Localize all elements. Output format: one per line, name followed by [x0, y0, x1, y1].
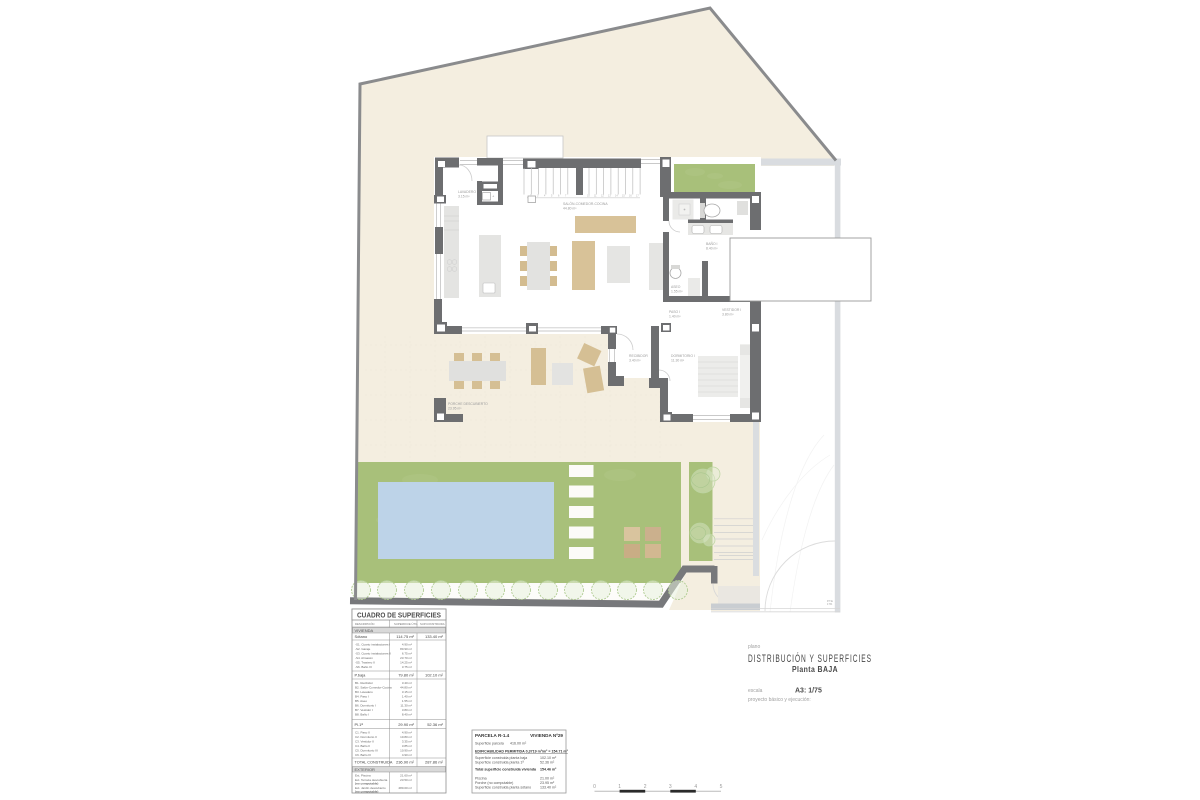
svg-text:133.40 m²: 133.40 m² — [425, 634, 444, 639]
svg-text:-S6. Baño III: -S6. Baño III — [355, 665, 372, 669]
svg-text:C6. Baño III: C6. Baño III — [355, 753, 371, 757]
svg-text:Ext. Piscina: Ext. Piscina — [355, 774, 371, 778]
svg-text:0: 0 — [593, 784, 596, 790]
svg-text:4: 4 — [694, 784, 697, 790]
svg-text:102.10 m²: 102.10 m² — [540, 756, 557, 760]
svg-text:236.90 m²: 236.90 m² — [396, 760, 415, 765]
svg-text:23.50 m²: 23.50 m² — [400, 778, 412, 782]
svg-text:VIVIENDA: VIVIENDA — [355, 628, 374, 633]
svg-text:A3: 1/75: A3: 1/75 — [795, 688, 822, 695]
svg-text:1.40 m²: 1.40 m² — [402, 695, 412, 699]
svg-text:VIVIENDA Nº29: VIVIENDA Nº29 — [530, 733, 563, 738]
svg-text:21.60 m²: 21.60 m² — [400, 774, 412, 778]
svg-text:B7. Vestidor I: B7. Vestidor I — [355, 708, 373, 712]
svg-text:287.86 m²: 287.86 m² — [425, 760, 444, 765]
svg-text:2: 2 — [644, 784, 647, 790]
svg-text:B6. Dormitorio I: B6. Dormitorio I — [355, 704, 376, 708]
svg-text:EDIFICABILIDAD PERMITIDA 0,37: EDIFICABILIDAD PERMITIDA 0,3719 m²/m² = … — [475, 750, 569, 754]
svg-text:(no computable): (no computable) — [355, 790, 378, 794]
svg-text:-S3. Cuarto instalaciones II: -S3. Cuarto instalaciones II — [355, 652, 391, 656]
svg-text:SUPERFICIE ÚTIL: SUPERFICIE ÚTIL — [394, 621, 418, 626]
svg-text:6.75 m²: 6.75 m² — [402, 652, 412, 656]
svg-text:SALÓN-COMEDOR-COCINA: SALÓN-COMEDOR-COCINA — [563, 201, 608, 206]
svg-text:5: 5 — [720, 784, 723, 790]
svg-text:B5. Aseo: B5. Aseo — [355, 699, 367, 703]
svg-text:(no computable): (no computable) — [355, 782, 378, 786]
svg-text:Superficie parcela: Superficie parcela — [475, 742, 504, 746]
svg-text:10.90 m²: 10.90 m² — [400, 749, 412, 753]
svg-text:21.00 m²: 21.00 m² — [540, 777, 555, 781]
svg-text:Superficie construida planta b: Superficie construida planta baja — [475, 756, 527, 760]
svg-text:LAVADERO: LAVADERO — [458, 190, 476, 194]
svg-text:DORMITORIO I: DORMITORIO I — [671, 354, 695, 358]
svg-text:C2. Dormitorio II: C2. Dormitorio II — [355, 735, 377, 739]
svg-text:-S4. Almacén: -S4. Almacén — [355, 656, 373, 660]
svg-text:PASO I: PASO I — [669, 310, 680, 314]
svg-text:102.10 m²: 102.10 m² — [425, 673, 444, 678]
svg-text:-S2. Garaje: -S2. Garaje — [355, 647, 371, 651]
svg-text:133.40 m²: 133.40 m² — [540, 786, 557, 790]
svg-text:52.36 m²: 52.36 m² — [427, 722, 443, 727]
svg-text:C1. Paso II: C1. Paso II — [355, 731, 370, 735]
svg-text:3.80 m²: 3.80 m² — [722, 313, 734, 317]
svg-text:3.80 m²: 3.80 m² — [402, 708, 412, 712]
svg-text:3.85 m²: 3.85 m² — [402, 744, 412, 748]
svg-text:VESTIDOR I: VESTIDOR I — [722, 308, 741, 312]
svg-text:RECIBIDOR: RECIBIDOR — [629, 354, 648, 358]
svg-text:1.55 m²: 1.55 m² — [671, 290, 683, 294]
svg-text:Piscina: Piscina — [475, 777, 487, 781]
svg-text:C4. Baño II: C4. Baño II — [355, 744, 370, 748]
svg-text:4.90 m²: 4.90 m² — [402, 731, 412, 735]
svg-text:PORCHE DESCUBIERTO: PORCHE DESCUBIERTO — [448, 402, 488, 406]
svg-text:8.40 m²: 8.40 m² — [402, 713, 412, 717]
svg-text:11.30 m²: 11.30 m² — [671, 359, 685, 363]
svg-text:Total superficie construida vi: Total superficie construida vivienda — [475, 768, 537, 772]
svg-text:3.40 m²: 3.40 m² — [629, 359, 641, 363]
svg-text:ASEO: ASEO — [671, 285, 681, 289]
svg-text:DESCRIPCIÓN: DESCRIPCIÓN — [355, 621, 374, 626]
svg-text:8.40 m²: 8.40 m² — [706, 247, 718, 251]
svg-text:plano: plano — [748, 644, 760, 650]
svg-text:23.95 m²: 23.95 m² — [448, 407, 462, 411]
svg-text:B8. Baño I: B8. Baño I — [355, 713, 369, 717]
svg-text:escala: escala — [748, 688, 763, 694]
svg-text:P.baja: P.baja — [355, 673, 367, 678]
svg-text:Pl.1ª: Pl.1ª — [355, 722, 364, 727]
svg-text:-S5. Trastero II: -S5. Trastero II — [355, 661, 375, 665]
svg-text:52.36 m²: 52.36 m² — [540, 761, 555, 765]
svg-text:TOTAL CONSTRUIDA: TOTAL CONSTRUIDA — [355, 761, 393, 765]
svg-text:EXTERIOR: EXTERIOR — [355, 767, 376, 772]
svg-text:Superficie construida planta 1: Superficie construida planta 1ª — [475, 761, 524, 765]
svg-text:3.15 m²: 3.15 m² — [402, 690, 412, 694]
svg-text:114.75 m²: 114.75 m² — [396, 634, 414, 639]
svg-text:Planta BAJA: Planta BAJA — [792, 665, 838, 674]
svg-text:3.75 m²: 3.75 m² — [402, 665, 412, 669]
svg-text:1.40 m²: 1.40 m² — [669, 315, 681, 319]
svg-text:-S1. Cuarto instalaciones I: -S1. Cuarto instalaciones I — [355, 643, 390, 647]
svg-text:3: 3 — [669, 784, 672, 790]
svg-text:280.00 m²: 280.00 m² — [398, 786, 412, 790]
svg-text:DISTRIBUCIÓN Y SUPERFICIES: DISTRIBUCIÓN Y SUPERFICIES — [748, 652, 872, 665]
svg-text:23.70 m²: 23.70 m² — [400, 656, 412, 660]
svg-text:14.25 m²: 14.25 m² — [400, 661, 412, 665]
svg-text:Porche (no computable): Porche (no computable) — [475, 781, 513, 785]
svg-text:154.46 m²: 154.46 m² — [540, 768, 557, 772]
svg-text:CUADRO DE SUPERFICIES: CUADRO DE SUPERFICIES — [357, 613, 441, 620]
svg-text:1.55 m²: 1.55 m² — [402, 699, 412, 703]
svg-text:80.90 m²: 80.90 m² — [400, 647, 412, 651]
svg-text:17%: 17% — [827, 602, 833, 606]
svg-text:1: 1 — [618, 784, 621, 790]
svg-text:4.90 m²: 4.90 m² — [402, 643, 412, 647]
svg-text:PARCELA R-1.4: PARCELA R-1.4 — [475, 733, 510, 738]
svg-text:C3. Vestidor II: C3. Vestidor II — [355, 740, 374, 744]
svg-text:44.80 m²: 44.80 m² — [563, 207, 577, 211]
svg-text:B4. Paso I: B4. Paso I — [355, 695, 369, 699]
svg-text:proyecto básico y ejecución:: proyecto básico y ejecución: — [748, 697, 811, 703]
svg-text:B3. Lavadero: B3. Lavadero — [355, 690, 373, 694]
svg-text:Sótano: Sótano — [355, 634, 368, 639]
svg-text:3.40 m²: 3.40 m² — [402, 681, 412, 685]
svg-text:416.00 m²: 416.00 m² — [510, 742, 527, 746]
svg-text:SUP.CONSTRUIDA: SUP.CONSTRUIDA — [420, 622, 445, 626]
svg-text:BAÑO I: BAÑO I — [706, 241, 718, 246]
svg-text:29.90 m²: 29.90 m² — [398, 722, 414, 727]
svg-text:23.95 m²: 23.95 m² — [540, 781, 555, 785]
svg-text:79.80 m²: 79.80 m² — [398, 673, 414, 678]
svg-text:44.80 m²: 44.80 m² — [400, 686, 412, 690]
svg-text:3.15 m²: 3.15 m² — [458, 195, 470, 199]
svg-text:B1. Recibidor: B1. Recibidor — [355, 681, 373, 685]
svg-text:11.30 m²: 11.30 m² — [400, 704, 412, 708]
svg-text:4.90 m²: 4.90 m² — [402, 753, 412, 757]
svg-text:Superficie construida planta s: Superficie construida planta sótano — [475, 786, 531, 790]
svg-text:3.35 m²: 3.35 m² — [402, 740, 412, 744]
svg-text:B2. Salón-Comedor-Cocina: B2. Salón-Comedor-Cocina — [355, 686, 392, 690]
svg-text:10.80 m²: 10.80 m² — [400, 735, 412, 739]
svg-text:C5. Dormitorio III: C5. Dormitorio III — [355, 749, 378, 753]
